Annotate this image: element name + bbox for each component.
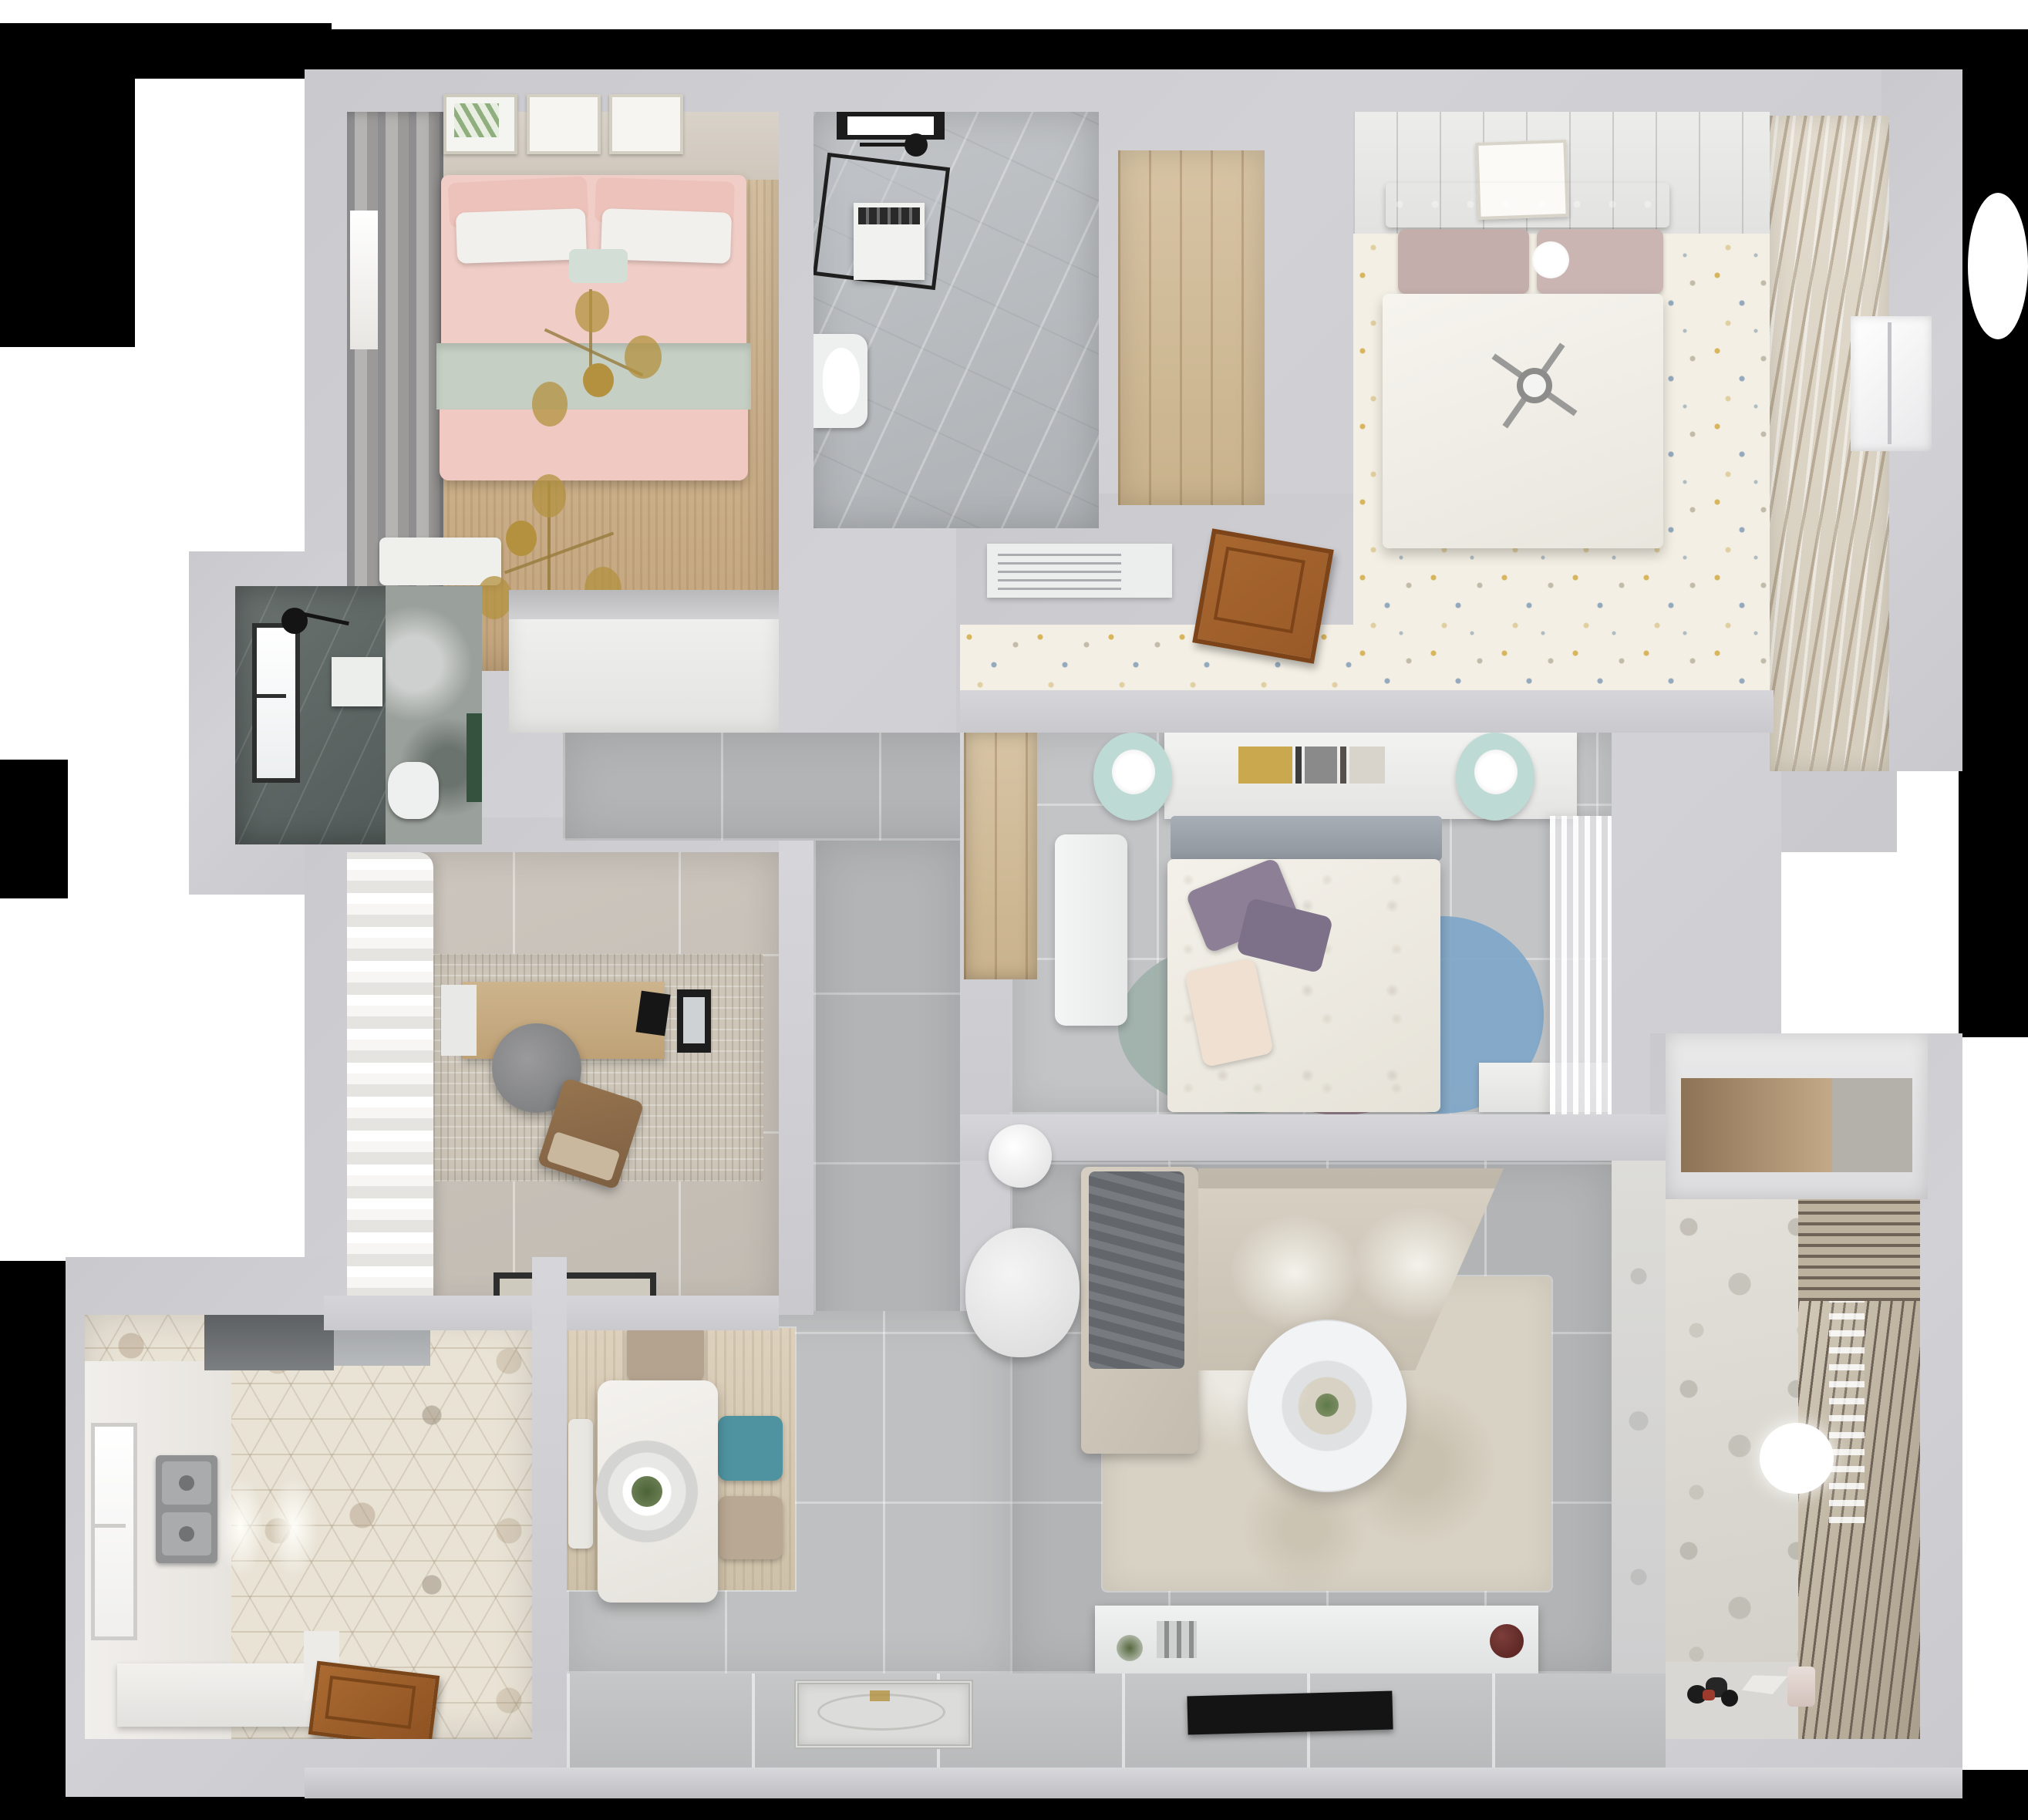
wall-bedroomc-top — [960, 690, 1774, 733]
nightstand-mint-right — [1456, 733, 1534, 821]
desk-monitor-shelf — [677, 989, 711, 1053]
shower-arm — [860, 143, 908, 147]
nightstand-mint-left — [1093, 733, 1172, 821]
dining-chair-teal — [718, 1416, 783, 1481]
ceiling-light-1 — [217, 1477, 264, 1577]
open-wood-door — [1192, 528, 1334, 664]
entry-floor-strip — [567, 1673, 1666, 1768]
room-dining — [567, 1311, 1010, 1673]
ceiling-fan-light — [1484, 335, 1585, 436]
flat-tv — [1187, 1691, 1393, 1735]
ceiling-light-2 — [270, 1477, 318, 1577]
toilet-main — [814, 334, 867, 428]
ensuite-mirror — [332, 657, 382, 706]
console-gadgets — [1157, 1621, 1197, 1658]
ac-vent — [987, 544, 1172, 598]
room-ensuite-bathroom — [235, 586, 482, 844]
range-hood — [204, 1315, 334, 1370]
pillow-white-left — [456, 208, 587, 264]
small-bin — [1787, 1667, 1815, 1707]
niche-wood-back — [1681, 1078, 1832, 1172]
shower-head — [905, 133, 928, 157]
wall-kitchen-dining — [532, 1257, 567, 1731]
dining-chair-bottom — [718, 1496, 783, 1559]
bg-mask-left-lower — [0, 1261, 68, 1820]
room-closet-top — [1118, 150, 1265, 505]
study-desk-return — [441, 985, 477, 1056]
ensuite-green-accent — [467, 713, 482, 802]
coffee-table-ring — [1248, 1319, 1406, 1492]
kitchen-window — [91, 1423, 137, 1640]
kitchen-counter-l — [117, 1663, 327, 1727]
closet-cabinet-front — [509, 590, 779, 619]
pendant-lamp-rings — [581, 1428, 713, 1555]
room-study — [347, 852, 779, 1311]
bg-right-cutout — [1968, 193, 2028, 339]
hall-upper — [563, 733, 1010, 841]
room-kitchen — [85, 1315, 532, 1739]
window-slit — [350, 211, 378, 349]
room-main-bathroom — [814, 112, 1099, 528]
pendant-plant-center — [632, 1476, 662, 1507]
toy-kite — [1739, 1667, 1791, 1701]
console-mugs — [1490, 1624, 1524, 1658]
floorplan-render — [0, 0, 2028, 1820]
armchair-white — [965, 1228, 1080, 1357]
wardrobe-niche-wood — [964, 733, 1037, 979]
study-curtains — [347, 852, 433, 1311]
bg-mask-left-mid — [0, 760, 68, 898]
niche-gray-back — [1832, 1078, 1912, 1172]
entry-door-mat — [794, 1680, 973, 1749]
shelf-books — [1238, 747, 1408, 784]
ensuite-shower-arm — [303, 612, 349, 625]
art-frame-2 — [527, 94, 601, 154]
bathroom-window — [837, 112, 945, 140]
room-storage-closet — [509, 590, 779, 733]
wall-bedroomc-living — [960, 1114, 1666, 1161]
bg-mask-left-upper — [0, 73, 135, 347]
art-frame-3 — [609, 94, 683, 154]
washing-machine — [854, 203, 925, 280]
room-balcony — [1666, 1199, 1920, 1739]
bed-guest-headboard — [1386, 183, 1669, 228]
laptop — [635, 991, 670, 1036]
console-plant — [1117, 1635, 1143, 1661]
dining-chair-top — [627, 1323, 704, 1382]
bed-center-headboard — [1171, 816, 1442, 861]
room-guest-bedroom — [1353, 112, 1770, 733]
double-sink — [156, 1455, 217, 1563]
room-living — [1010, 1161, 1612, 1673]
bg-mask-top-left — [0, 23, 332, 79]
kitchen-entry-door — [308, 1661, 440, 1739]
art-frame-botanical — [443, 94, 517, 154]
balcony-storage-niche — [1666, 1033, 1928, 1199]
ensuite-toilet — [388, 762, 439, 819]
ensuite-window — [252, 623, 300, 783]
right-door-niche — [1851, 316, 1932, 451]
desk-white-vanity — [1055, 834, 1127, 1026]
bg-mask-right — [1959, 31, 2028, 1037]
wall-bottom-outer — [305, 1768, 1962, 1798]
wall-living-right — [1612, 1161, 1666, 1739]
sheer-curtains-right — [1550, 816, 1612, 1114]
sofa-throw-gray — [1089, 1171, 1184, 1369]
table-lamp-guest — [1532, 241, 1569, 278]
bg-mask-bottom — [0, 1797, 2028, 1820]
tv-console — [1095, 1606, 1538, 1673]
balcony-ceiling-light — [1760, 1423, 1834, 1494]
side-stool-white — [989, 1124, 1052, 1188]
chandelier-branch-upper — [509, 289, 679, 436]
wall-study-hall — [779, 841, 814, 1315]
coffee-table-sprig — [1316, 1394, 1339, 1417]
toy-cars — [1687, 1677, 1737, 1710]
pillow-accent-small — [569, 249, 628, 283]
room-center-bedroom — [1010, 733, 1612, 1114]
pillow-guest-left — [1398, 229, 1529, 294]
